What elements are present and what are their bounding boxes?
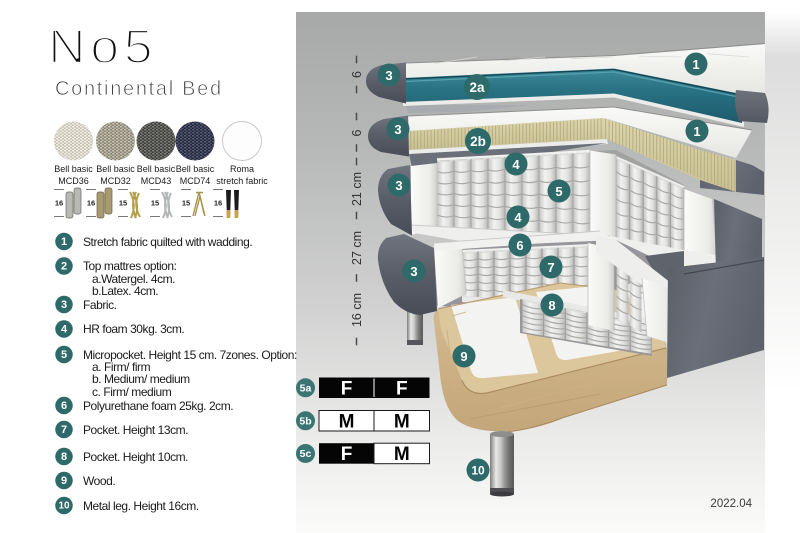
svg-text:6: 6 (350, 129, 364, 136)
svg-text:F: F (396, 378, 408, 399)
svg-text:15: 15 (119, 199, 127, 208)
svg-text:2a: 2a (469, 80, 485, 95)
svg-text:2b: 2b (470, 134, 486, 149)
svg-text:6: 6 (61, 400, 67, 412)
svg-text:5: 5 (555, 184, 562, 199)
svg-text:1: 1 (61, 236, 67, 248)
svg-text:1: 1 (693, 124, 700, 139)
svg-text:16: 16 (55, 199, 63, 208)
svg-text:8: 8 (61, 451, 67, 463)
svg-text:15: 15 (182, 199, 190, 208)
svg-text:3: 3 (395, 178, 402, 193)
svg-text:4: 4 (514, 210, 522, 225)
svg-text:16 cm: 16 cm (350, 293, 364, 327)
svg-text:M: M (339, 411, 355, 432)
svg-text:16: 16 (87, 199, 95, 208)
svg-text:5c: 5c (300, 448, 312, 460)
svg-text:F: F (341, 378, 353, 399)
svg-text:7: 7 (61, 424, 67, 436)
svg-text:6: 6 (350, 71, 364, 78)
svg-text:7: 7 (547, 260, 554, 275)
svg-text:2022.04: 2022.04 (710, 498, 752, 510)
svg-text:10: 10 (58, 501, 70, 512)
svg-text:3: 3 (61, 299, 67, 311)
svg-text:3: 3 (410, 264, 417, 279)
svg-text:8: 8 (548, 298, 555, 313)
svg-text:5: 5 (61, 349, 67, 361)
svg-text:21 cm: 21 cm (350, 172, 364, 206)
svg-text:4: 4 (512, 157, 520, 172)
svg-text:M: M (394, 444, 410, 465)
svg-text:5a: 5a (300, 382, 312, 394)
svg-text:3: 3 (385, 68, 392, 83)
svg-text:5b: 5b (299, 415, 311, 427)
svg-text:9: 9 (460, 349, 467, 364)
svg-text:16: 16 (214, 199, 222, 208)
svg-text:4: 4 (61, 324, 68, 336)
svg-text:15: 15 (151, 199, 159, 208)
svg-text:M: M (394, 411, 410, 432)
svg-text:6: 6 (516, 238, 523, 253)
svg-text:1: 1 (692, 57, 699, 72)
svg-text:3: 3 (394, 122, 401, 137)
svg-text:2: 2 (61, 261, 67, 273)
svg-text:9: 9 (61, 475, 67, 487)
svg-text:27 cm: 27 cm (350, 231, 364, 265)
svg-text:10: 10 (471, 464, 485, 478)
svg-text:F: F (341, 444, 353, 465)
